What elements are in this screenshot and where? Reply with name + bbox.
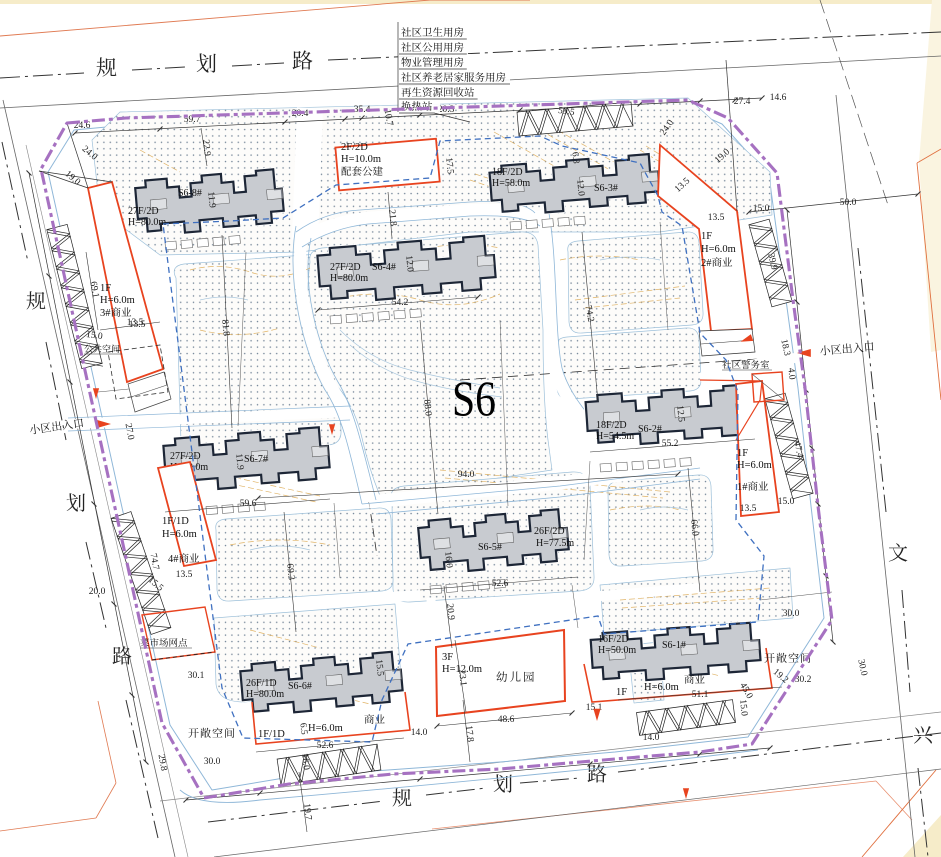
svg-text:52.6: 52.6 bbox=[492, 579, 509, 589]
svg-text:6.3: 6.3 bbox=[569, 151, 580, 164]
svg-text:文: 文 bbox=[888, 537, 908, 566]
svg-text:S6-5#: S6-5# bbox=[478, 542, 502, 553]
svg-text:S6-3#: S6-3# bbox=[594, 183, 618, 194]
svg-text:27F/2D: 27F/2D bbox=[330, 262, 361, 273]
svg-text:1F/1D: 1F/1D bbox=[258, 726, 285, 741]
svg-text:13.5: 13.5 bbox=[127, 318, 144, 328]
svg-text:商业: 商业 bbox=[364, 712, 385, 727]
svg-text:13.5: 13.5 bbox=[708, 213, 725, 223]
svg-text:H=80.0m: H=80.0m bbox=[330, 273, 368, 284]
svg-text:66.0: 66.0 bbox=[688, 519, 700, 537]
svg-text:94.0: 94.0 bbox=[458, 470, 475, 480]
svg-text:14.0: 14.0 bbox=[411, 728, 428, 738]
svg-text:社区公用用房: 社区公用用房 bbox=[401, 40, 464, 55]
svg-text:H=54.5m: H=54.5m bbox=[596, 431, 634, 442]
svg-text:81.8: 81.8 bbox=[219, 319, 231, 337]
svg-text:30.1: 30.1 bbox=[188, 671, 205, 681]
svg-text:S6-4#: S6-4# bbox=[372, 262, 396, 273]
svg-text:H=80.0m: H=80.0m bbox=[246, 689, 284, 700]
svg-text:51.1: 51.1 bbox=[692, 690, 709, 700]
svg-text:15.0: 15.0 bbox=[778, 497, 795, 507]
svg-text:30.0: 30.0 bbox=[204, 757, 221, 767]
svg-text:13.5: 13.5 bbox=[740, 504, 757, 514]
svg-text:H=6.0m: H=6.0m bbox=[737, 457, 772, 472]
svg-text:再生资源回收站: 再生资源回收站 bbox=[401, 85, 475, 100]
svg-text:15.5: 15.5 bbox=[373, 659, 385, 677]
svg-text:18F/2D: 18F/2D bbox=[492, 167, 523, 178]
svg-text:27F/2D: 27F/2D bbox=[170, 451, 201, 462]
svg-text:换热站: 换热站 bbox=[401, 99, 433, 114]
svg-text:59.6: 59.6 bbox=[240, 499, 257, 509]
svg-text:27F/2D: 27F/2D bbox=[128, 206, 159, 217]
svg-text:1#商业: 1#商业 bbox=[737, 479, 769, 494]
svg-text:菜市场网点: 菜市场网点 bbox=[140, 635, 188, 649]
svg-text:12.5: 12.5 bbox=[674, 405, 686, 423]
svg-text:社区卫生用房: 社区卫生用房 bbox=[401, 25, 464, 40]
svg-text:H=50.0m: H=50.0m bbox=[598, 645, 636, 656]
svg-text:12.0: 12.0 bbox=[403, 255, 415, 273]
svg-text:社区养老居家服务用房: 社区养老居家服务用房 bbox=[401, 70, 506, 85]
svg-text:26F/2D: 26F/2D bbox=[534, 526, 565, 537]
svg-text:配套公建: 配套公建 bbox=[341, 164, 383, 179]
svg-text:17.8: 17.8 bbox=[463, 725, 475, 743]
svg-text:21.8: 21.8 bbox=[386, 209, 398, 227]
svg-text:规: 规 bbox=[96, 52, 117, 82]
svg-text:19.7: 19.7 bbox=[301, 803, 313, 821]
svg-text:88.0: 88.0 bbox=[421, 399, 433, 417]
svg-text:69.3: 69.3 bbox=[284, 563, 296, 581]
svg-text:H=6.0m: H=6.0m bbox=[701, 241, 736, 256]
svg-text:16.0: 16.0 bbox=[299, 753, 311, 771]
svg-text:15.0: 15.0 bbox=[737, 699, 749, 717]
svg-text:11.9: 11.9 bbox=[205, 191, 217, 208]
svg-text:S6-8#: S6-8# bbox=[178, 188, 202, 199]
svg-text:15.1: 15.1 bbox=[586, 703, 603, 713]
svg-text:幼儿园: 幼儿园 bbox=[496, 669, 537, 685]
svg-text:52.6: 52.6 bbox=[317, 741, 334, 751]
svg-text:30.0: 30.0 bbox=[783, 609, 800, 619]
svg-text:48.6: 48.6 bbox=[498, 715, 515, 725]
svg-text:26F/1D: 26F/1D bbox=[246, 678, 277, 689]
svg-text:20.0: 20.0 bbox=[89, 587, 106, 597]
svg-text:22.9: 22.9 bbox=[200, 139, 212, 157]
svg-text:12.0: 12.0 bbox=[574, 179, 586, 197]
svg-text:54.2: 54.2 bbox=[392, 298, 409, 308]
svg-text:H=77.5m: H=77.5m bbox=[536, 538, 574, 549]
svg-text:4.0: 4.0 bbox=[785, 367, 796, 380]
svg-text:20.9: 20.9 bbox=[444, 603, 456, 621]
svg-text:规: 规 bbox=[26, 285, 46, 314]
svg-text:物业管理用房: 物业管理用房 bbox=[401, 55, 464, 70]
svg-text:14.0: 14.0 bbox=[643, 733, 660, 743]
svg-text:商业: 商业 bbox=[684, 672, 705, 687]
svg-text:18F/2D: 18F/2D bbox=[596, 420, 627, 431]
svg-text:6.5: 6.5 bbox=[297, 722, 308, 735]
svg-text:2#商业: 2#商业 bbox=[701, 255, 733, 270]
svg-text:1F: 1F bbox=[616, 684, 627, 699]
svg-text:S6: S6 bbox=[452, 370, 496, 426]
svg-text:开敞空间: 开敞空间 bbox=[188, 725, 236, 741]
svg-text:S6-1#: S6-1# bbox=[662, 640, 686, 651]
svg-text:兴: 兴 bbox=[913, 719, 933, 748]
svg-text:H=6.0m: H=6.0m bbox=[162, 526, 197, 541]
svg-text:S6-2#: S6-2# bbox=[638, 424, 662, 435]
svg-text:开敞空间: 开敞空间 bbox=[764, 650, 812, 666]
svg-text:16F/2D: 16F/2D bbox=[598, 634, 629, 645]
svg-text:23.1: 23.1 bbox=[456, 669, 468, 687]
svg-text:13.5: 13.5 bbox=[176, 570, 193, 580]
svg-text:50.0: 50.0 bbox=[840, 198, 857, 208]
svg-text:划: 划 bbox=[196, 48, 217, 78]
svg-text:14.6: 14.6 bbox=[770, 93, 787, 103]
svg-text:H=58.0m: H=58.0m bbox=[492, 178, 530, 189]
svg-text:17.5: 17.5 bbox=[443, 157, 455, 175]
svg-text:划: 划 bbox=[66, 487, 86, 516]
svg-text:4#商业: 4#商业 bbox=[168, 551, 200, 566]
svg-text:55.2: 55.2 bbox=[662, 439, 679, 449]
svg-text:路: 路 bbox=[112, 640, 132, 669]
svg-text:S6-7#: S6-7# bbox=[244, 454, 268, 465]
svg-text:公共空间: 公共空间 bbox=[84, 342, 120, 355]
svg-text:S6-6#: S6-6# bbox=[288, 681, 312, 692]
svg-text:路: 路 bbox=[292, 45, 313, 75]
svg-text:11.9: 11.9 bbox=[233, 453, 245, 470]
svg-text:H=80.0m: H=80.0m bbox=[128, 217, 166, 228]
svg-text:15.0: 15.0 bbox=[753, 204, 770, 214]
svg-text:16.0: 16.0 bbox=[442, 551, 454, 569]
svg-text:H=6.0m: H=6.0m bbox=[308, 720, 343, 735]
svg-text:27.4: 27.4 bbox=[734, 97, 751, 107]
svg-text:H=6.0m: H=6.0m bbox=[644, 679, 679, 694]
